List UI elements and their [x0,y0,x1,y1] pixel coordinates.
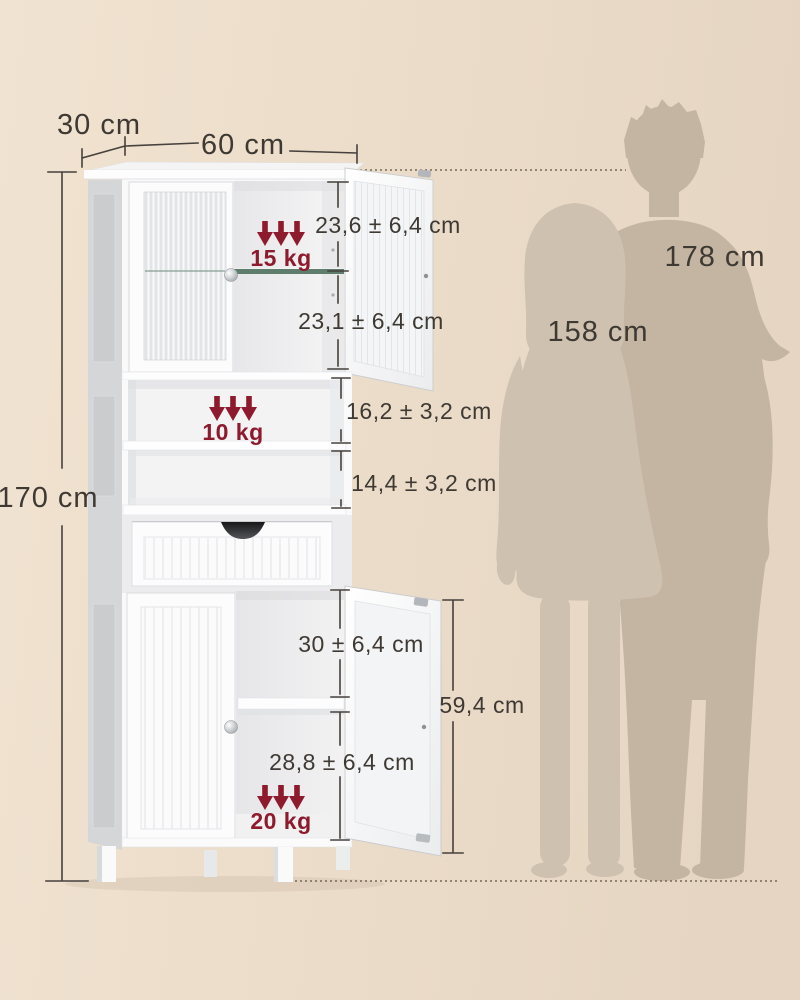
door-knob-screw [422,725,426,729]
height-dimension-label: 170 cm [0,482,99,514]
woman-neck [561,284,589,314]
shelf-top-gap-label: 16,2 ± 3,2 cm [346,398,492,424]
upper-closed-glass-door [129,182,233,372]
upper-open-glass-door [345,168,433,391]
lower-shelf [238,698,344,709]
weight-arrows-icon-lower [257,785,305,810]
woman-left-leg [540,594,570,866]
product-dimension-diagram: 30 cm 60 cm 170 cm 23,6 ± 6,4 cm 23,1 ± … [0,0,800,1000]
woman-height-label: 158 cm [547,316,648,348]
compartment-bottom-board [123,505,346,515]
man-left-foot [634,863,690,881]
depth-dimension-label: 30 cm [57,109,141,141]
upper-bottom-gap-label: 23,1 ± 6,4 cm [298,308,444,334]
diagram-canvas: 30 cm 60 cm 170 cm 23,6 ± 6,4 cm 23,1 ± … [0,0,800,1000]
woman-right-foot [586,861,624,877]
weight-arrows-icon-middle [209,396,257,421]
width-dimension-label: 60 cm [201,129,285,161]
shelf-pin-hole [331,248,334,251]
door-hinge [418,169,432,177]
shelf-bottom-gap-label: 14,4 ± 3,2 cm [351,470,497,496]
lower-bottom-gap-label: 28,8 ± 6,4 cm [269,749,415,775]
middle-shelf-capacity-label: 10 kg [202,419,263,445]
cabinet-top-panel [84,162,364,179]
weight-arrows-icon-upper [257,221,305,246]
upper-top-gap-label: 23,6 ± 6,4 cm [315,212,461,238]
upper-door-knob [225,269,238,282]
lower-closed-door [127,593,235,841]
shelf-pin-hole [331,293,334,296]
woman-head [544,206,606,288]
man-right-foot [692,861,744,879]
upper-shelf-capacity-label: 15 kg [250,245,311,271]
man-neck [649,183,679,217]
door-knob-screw [424,274,428,278]
upper-glass-cabinet [129,168,433,391]
lower-interior [236,591,344,840]
lower-door-height-label: 59,4 cm [439,692,524,718]
drawer [122,515,352,593]
lower-door-knob [225,721,238,734]
base-rail [122,838,352,847]
lower-open-door [345,586,441,856]
man-head [627,106,701,196]
woman-right-leg [588,592,620,868]
open-shelf-compartment [122,380,352,515]
man-height-label: 178 cm [664,241,765,273]
cabinet-side-panel [88,180,122,850]
lower-top-gap-label: 30 ± 6,4 cm [298,631,424,657]
lower-shelf-capacity-label: 20 kg [250,808,311,834]
divider-board [122,372,352,380]
woman-left-foot [531,862,567,878]
